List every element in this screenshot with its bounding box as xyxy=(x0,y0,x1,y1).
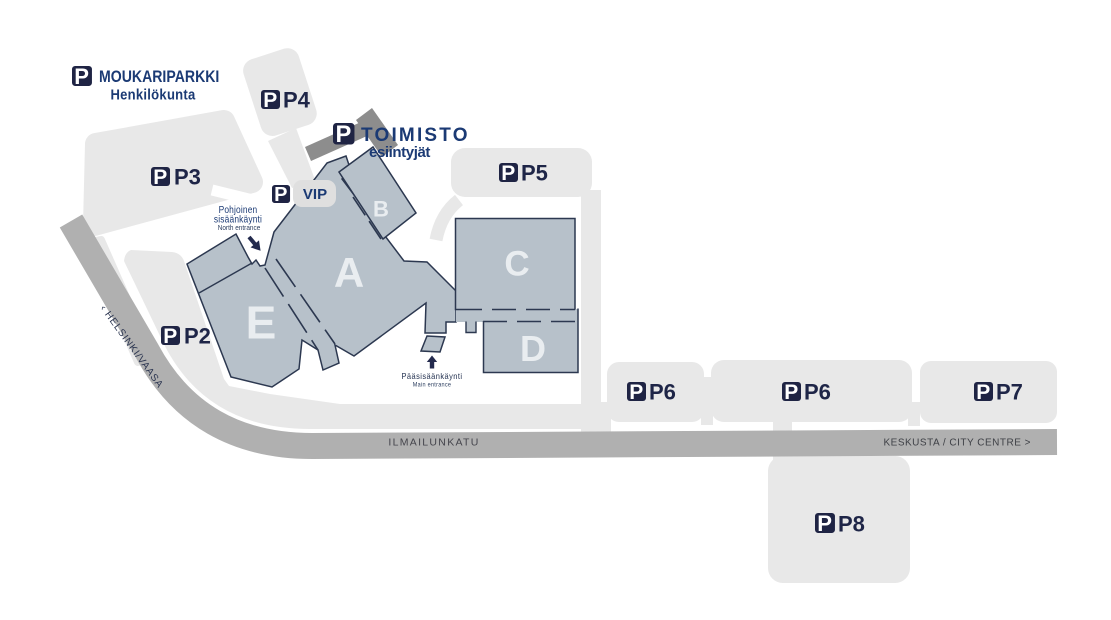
svg-text:A: A xyxy=(334,249,364,296)
svg-text:Pääsisäänkäynti: Pääsisäänkäynti xyxy=(401,372,462,382)
svg-text:TOIMISTO: TOIMISTO xyxy=(361,125,470,146)
svg-text:P3: P3 xyxy=(174,165,201,190)
svg-text:P2: P2 xyxy=(184,324,211,349)
svg-text:North entrance: North entrance xyxy=(218,225,261,232)
svg-text:Henkilökunta: Henkilökunta xyxy=(110,87,195,103)
svg-text:VIP: VIP xyxy=(303,186,327,203)
svg-text:esiintyjät: esiintyjät xyxy=(369,144,430,161)
svg-text:MOUKARIPARKKI: MOUKARIPARKKI xyxy=(99,68,219,86)
svg-text:E: E xyxy=(246,297,277,349)
svg-text:KESKUSTA / CITY CENTRE >: KESKUSTA / CITY CENTRE > xyxy=(884,438,1032,449)
svg-text:D: D xyxy=(520,328,546,369)
svg-text:ILMAILUNKATU: ILMAILUNKATU xyxy=(388,437,479,449)
svg-text:P8: P8 xyxy=(838,512,865,537)
svg-text:P5: P5 xyxy=(521,161,548,186)
svg-text:B: B xyxy=(373,197,389,222)
svg-text:Main entrance: Main entrance xyxy=(413,382,451,388)
svg-text:P6: P6 xyxy=(649,380,676,405)
svg-text:P7: P7 xyxy=(996,380,1023,405)
svg-text:C: C xyxy=(504,245,529,284)
svg-text:P4: P4 xyxy=(283,88,311,113)
svg-text:P6: P6 xyxy=(804,380,831,405)
svg-text:sisäänkäynti: sisäänkäynti xyxy=(214,214,262,225)
